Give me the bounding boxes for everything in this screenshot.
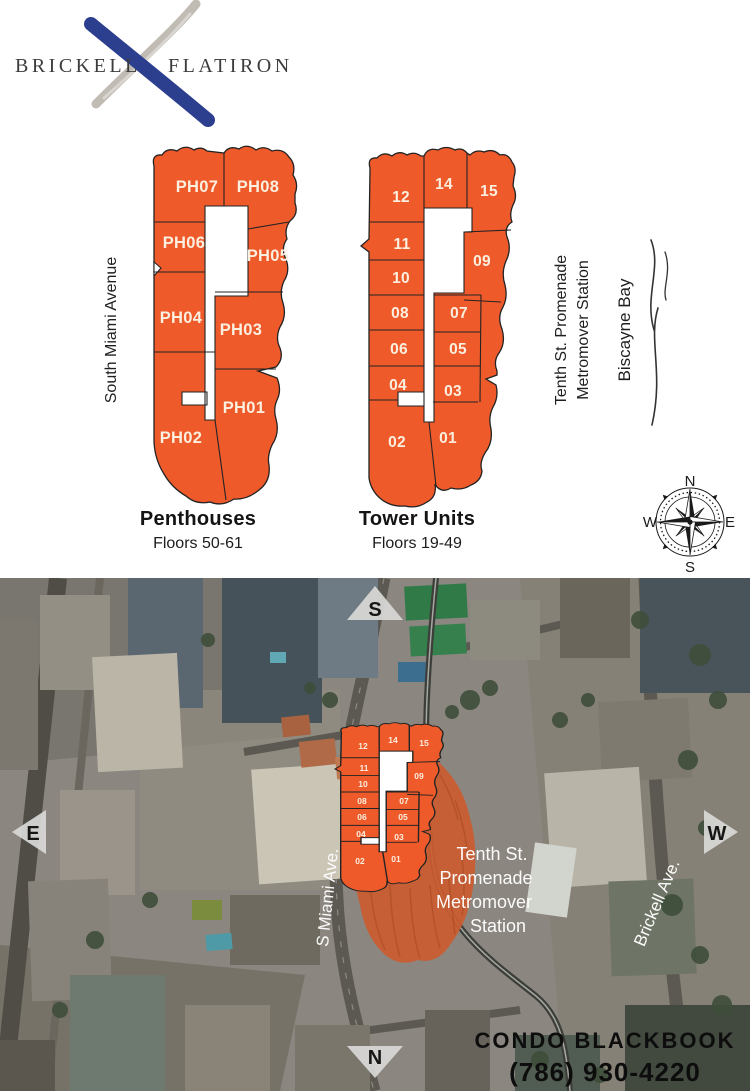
mini-unit-01: 01	[391, 854, 401, 864]
branding: CONDO BLACKBOOK (786) 930-4220	[475, 1028, 736, 1087]
logo-text-flatiron: FLATIRON	[168, 55, 293, 77]
unit-label-02: 02	[388, 434, 406, 451]
mini-unit-10: 10	[358, 779, 368, 789]
marker-west: W	[708, 823, 727, 845]
metromover-line-2: Metromover Station	[575, 260, 592, 400]
mini-unit-11: 11	[360, 763, 369, 773]
unit-label-ph07: PH07	[176, 178, 218, 196]
unit-label-ph04: PH04	[160, 309, 203, 327]
mini-unit-15: 15	[419, 738, 429, 748]
unit-label-07: 07	[450, 305, 468, 322]
aerial-map: 12 14 15 11 09 10 08 07 06 05 04 03 02 0…	[0, 578, 750, 1091]
unit-label-ph06: PH06	[163, 234, 205, 252]
unit-label-06: 06	[390, 341, 408, 358]
marker-east: E	[26, 823, 39, 845]
unit-label-ph08: PH08	[237, 178, 279, 196]
unit-label-08: 08	[391, 305, 409, 322]
mini-unit-04: 04	[356, 829, 366, 839]
logo-text-brickell: BRICKELL	[15, 55, 141, 77]
unit-label-ph02: PH02	[160, 429, 202, 447]
tower-title: Tower Units	[359, 508, 475, 530]
unit-label-11: 11	[394, 236, 411, 253]
mini-unit-14: 14	[388, 735, 398, 745]
unit-label-05: 05	[449, 341, 467, 358]
mini-unit-03: 03	[394, 832, 404, 842]
flyer-canvas: BRICKELL FLATIRON South Miami Avenue PH0…	[0, 0, 750, 1091]
mini-unit-08: 08	[357, 796, 367, 806]
mini-unit-02: 02	[355, 856, 365, 866]
station-line-2: Promenade	[439, 868, 532, 888]
mini-unit-05: 05	[398, 812, 408, 822]
unit-label-12: 12	[392, 189, 410, 206]
marker-south: S	[368, 599, 381, 621]
unit-label-ph01: PH01	[223, 399, 265, 417]
unit-label-03: 03	[444, 383, 462, 400]
tower-subtitle: Floors 19-49	[372, 535, 462, 552]
marker-north: N	[368, 1047, 382, 1069]
mini-unit-09: 09	[414, 771, 424, 781]
mini-unit-07: 07	[399, 796, 409, 806]
flyer-page: BRICKELL FLATIRON South Miami Avenue PH0…	[0, 0, 750, 1091]
branding-phone: (786) 930-4220	[509, 1057, 701, 1087]
penthouses-subtitle: Floors 50-61	[153, 535, 243, 552]
biscayne-bay-label: Biscayne Bay	[615, 278, 634, 381]
compass-s: S	[685, 559, 695, 576]
unit-label-09: 09	[473, 253, 491, 270]
unit-label-ph03: PH03	[220, 321, 262, 339]
unit-label-04: 04	[389, 377, 407, 394]
mini-unit-12: 12	[358, 741, 368, 751]
station-line-3: Metromover	[436, 892, 532, 912]
compass-e: E	[725, 514, 735, 531]
unit-label-01: 01	[439, 430, 457, 447]
penthouses-title: Penthouses	[140, 508, 256, 530]
unit-label-14: 14	[435, 176, 453, 193]
unit-label-15: 15	[480, 183, 498, 200]
compass-w: W	[643, 514, 658, 531]
branding-company: CONDO BLACKBOOK	[475, 1028, 736, 1053]
metromover-line-1: Tenth St. Promenade	[553, 255, 570, 405]
compass-n: N	[685, 473, 696, 490]
mini-unit-06: 06	[357, 812, 367, 822]
station-line-1: Tenth St.	[456, 844, 527, 864]
unit-label-10: 10	[392, 270, 410, 287]
street-label-south-miami-avenue: South Miami Avenue	[103, 257, 120, 404]
unit-label-ph05: PH05	[247, 247, 289, 265]
station-line-4: Station	[470, 916, 526, 936]
